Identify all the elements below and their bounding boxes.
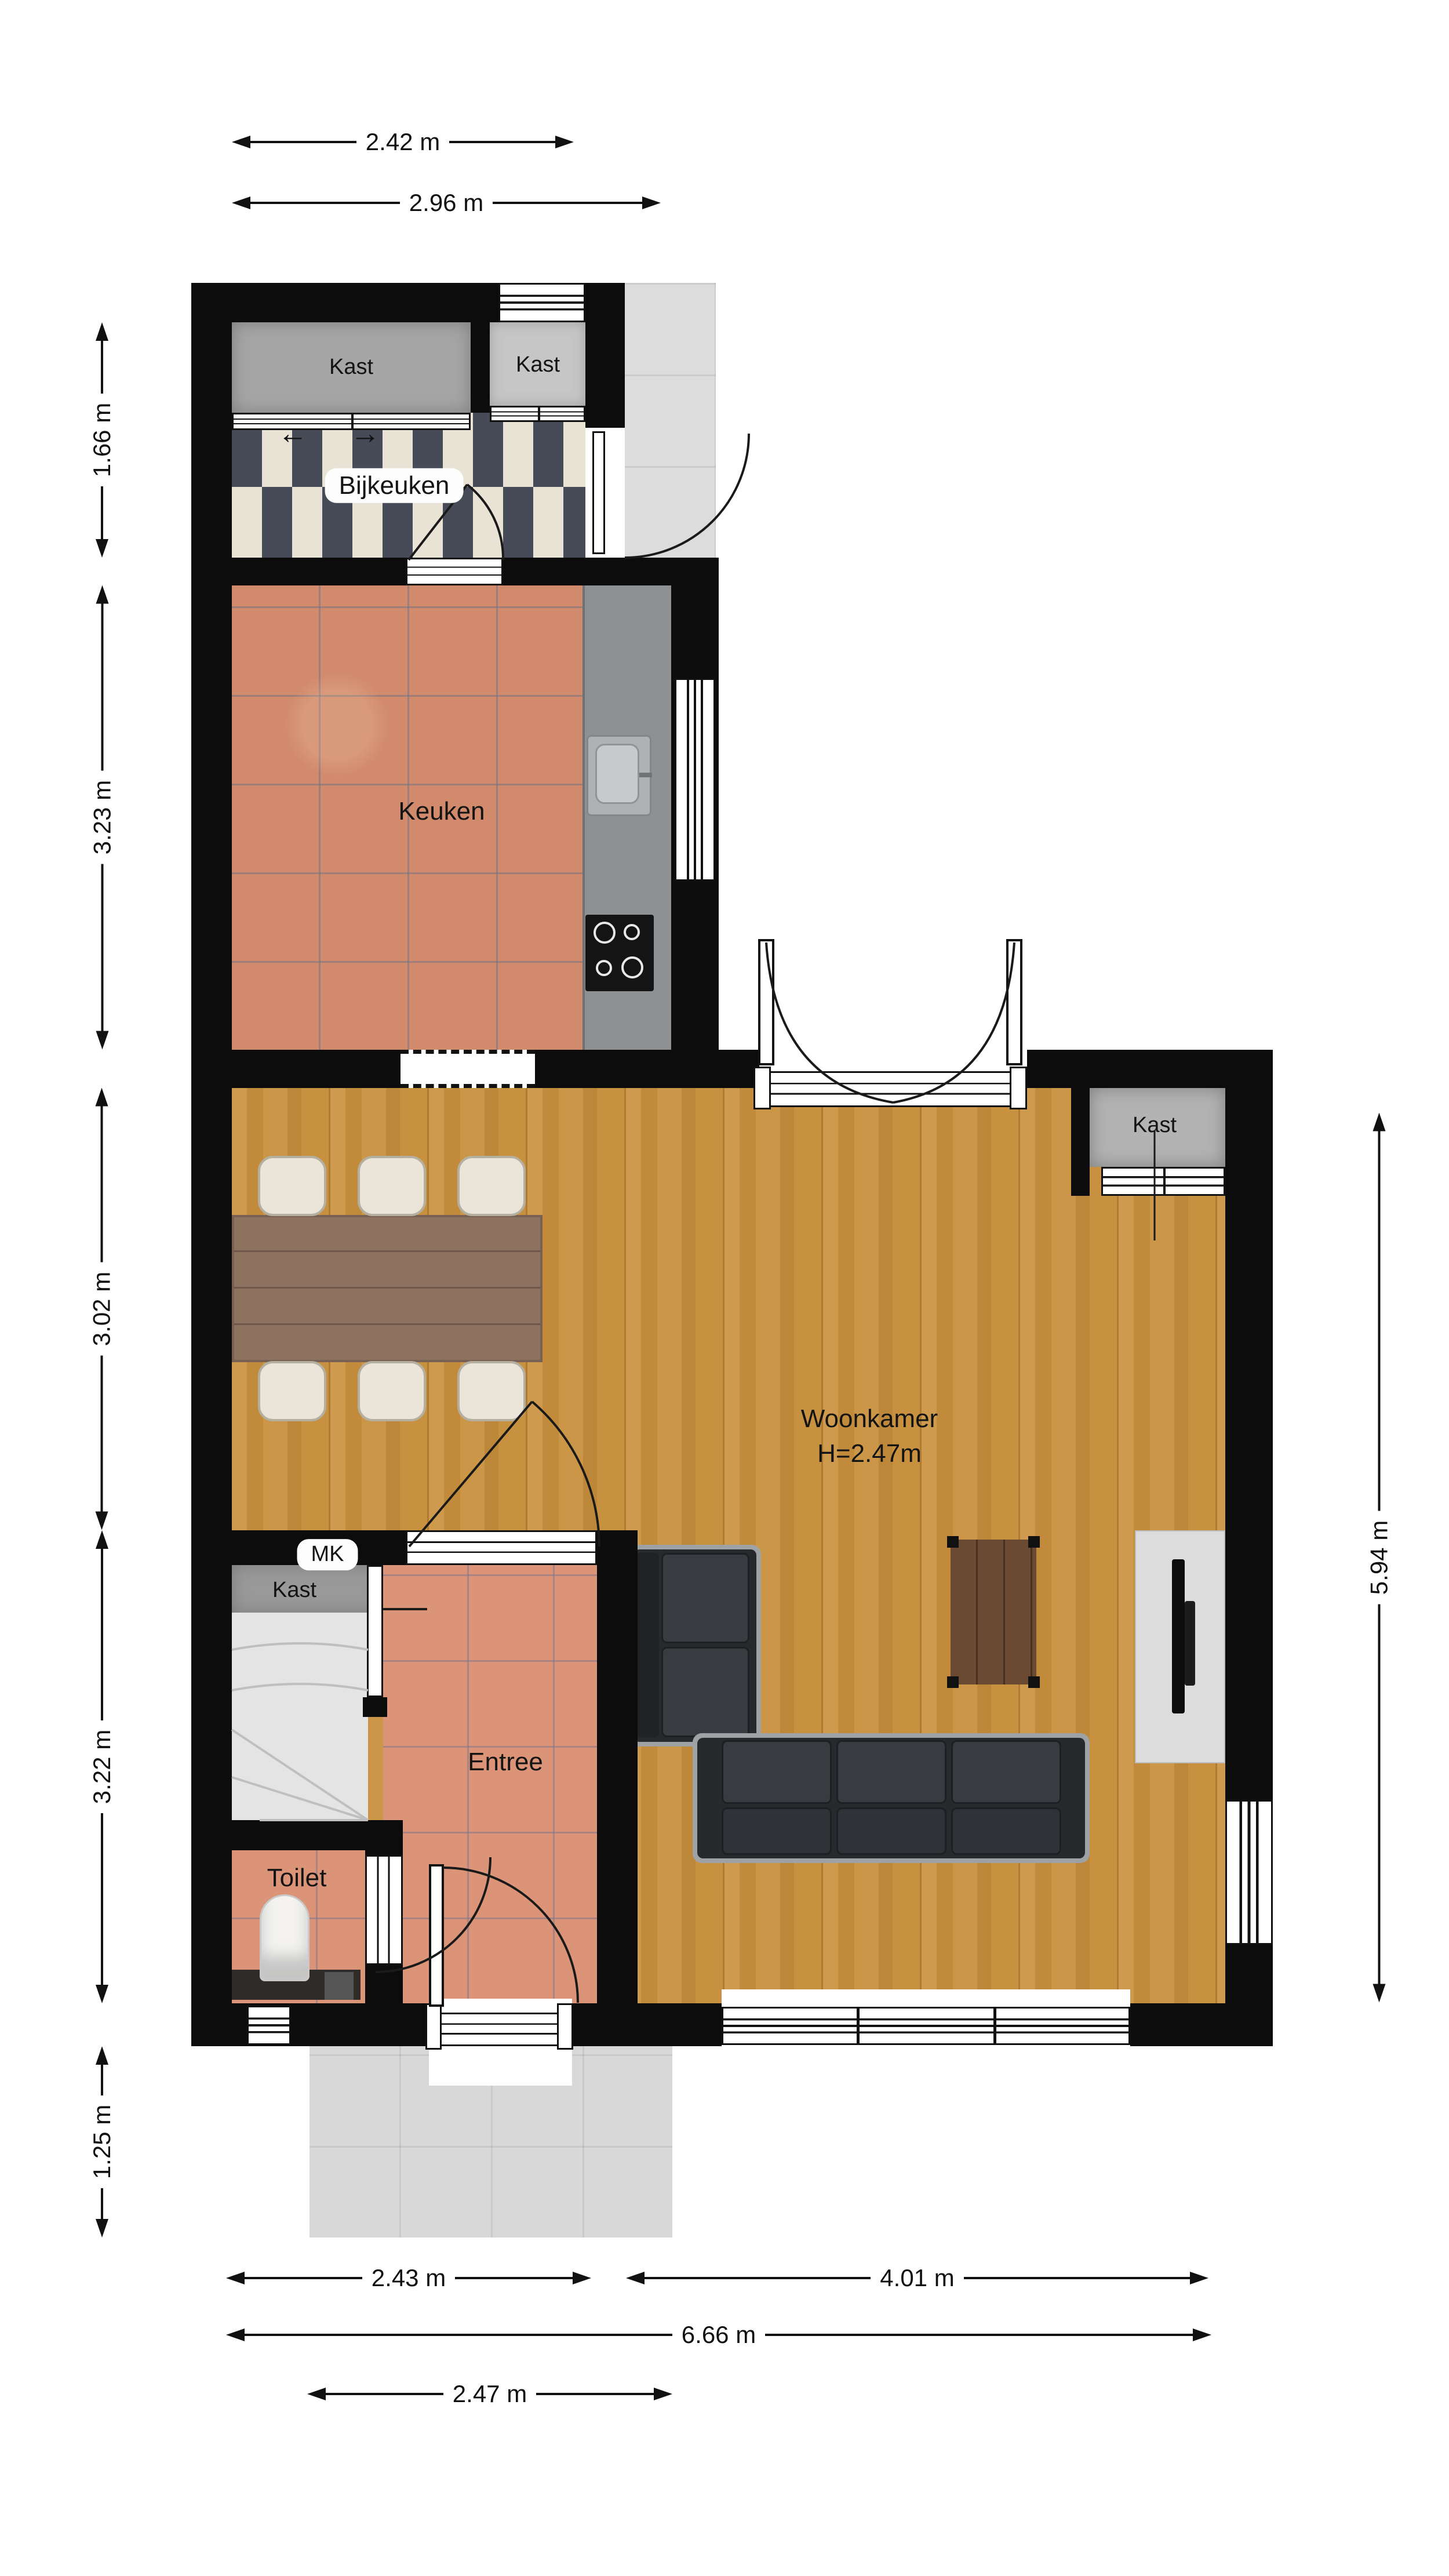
bijkeuken-label: Bijkeuken: [325, 468, 464, 503]
window: [675, 678, 715, 881]
entree-floor: [383, 1565, 597, 2003]
slide-right-icon: →: [350, 416, 380, 451]
front-door-sill: [429, 2013, 572, 2046]
dining-table: [232, 1215, 543, 1362]
dimension-left-4: 3.22 m: [90, 1530, 114, 2003]
patio-door-leaf: [592, 431, 605, 554]
wall-kast-divider: [471, 322, 490, 413]
entree-label: Entree: [468, 1748, 543, 1776]
coffee-table: [951, 1540, 1036, 1684]
wall-stairs-bottom: [191, 1820, 383, 1850]
window-divider: [857, 2007, 860, 2045]
burner-icon: [621, 956, 643, 978]
keuken-woonkamer-passage: [401, 1050, 535, 1088]
stairs-partition: [367, 1565, 383, 1697]
dining-chair: [358, 1361, 426, 1421]
sofa-two-seat: [629, 1545, 761, 1747]
woonkamer-height-label: H=2.47m: [817, 1440, 922, 1468]
kast3-sliding-door: [1101, 1167, 1225, 1196]
keuken-label: Keuken: [398, 798, 485, 825]
burner-icon: [594, 922, 616, 944]
dimension-left-1: 1.66 m: [90, 322, 114, 558]
slide-left-icon: ←: [278, 416, 308, 451]
dimension-bottom-1: 2.43 m: [226, 2266, 591, 2290]
dimension-top-2: 2.96 m: [232, 191, 661, 214]
toilet-wc: [260, 1894, 310, 1981]
cooktop: [585, 915, 654, 991]
dimension-left-2: 3.23 m: [91, 585, 114, 1050]
burner-icon: [596, 960, 612, 976]
kast2-sliding-door: [490, 406, 585, 422]
front-door-post: [425, 2003, 442, 2050]
patio-paving: [625, 283, 716, 558]
window: [247, 2006, 291, 2045]
toilet-label: Toilet: [267, 1864, 327, 1892]
dining-chair: [258, 1156, 326, 1216]
dimension-bottom-4: 2.47 m: [307, 2382, 672, 2406]
wall-entree-right: [597, 1530, 638, 2003]
woonkamer-entree-door-opening: [406, 1530, 597, 1565]
french-door-sill: [759, 1071, 1027, 1107]
window: [1225, 1800, 1273, 1945]
toilet-cabinet: [325, 1972, 354, 2000]
wall-left: [191, 283, 232, 2046]
kast4-label: Kast: [272, 1578, 316, 1603]
sink-basin: [595, 744, 639, 804]
dining-chair: [358, 1156, 426, 1216]
tv: [1172, 1559, 1185, 1713]
door-leaf-icon: [759, 940, 773, 1064]
window: [498, 283, 585, 322]
staircase: [232, 1613, 368, 1820]
dimension-right-1: 5.94 m: [1368, 1113, 1391, 2003]
kast2-label: Kast: [516, 353, 560, 377]
dining-chair: [457, 1156, 526, 1216]
kast1-label: Kast: [329, 355, 373, 380]
woonkamer-label: Woonkamer: [801, 1405, 938, 1433]
dimension-bottom-3: 6.66 m: [226, 2323, 1211, 2346]
floor-plan: Kast Kast Bijkeuken ← → Keuken Woonkamer…: [0, 0, 1449, 2576]
sink-faucet-icon: [639, 773, 652, 777]
window-divider: [993, 2007, 996, 2045]
tv-stand: [1185, 1601, 1195, 1686]
dimension-bottom-2: 4.01 m: [626, 2266, 1208, 2290]
dimension-left-5: 1.25 m: [90, 2046, 114, 2237]
toilet-door-opening: [365, 1855, 403, 1965]
sofa-three-seat: [693, 1733, 1090, 1863]
french-door-post: [1010, 1067, 1027, 1109]
window: [722, 2007, 1130, 2045]
dimension-left-3: 3.02 m: [90, 1088, 114, 1530]
wall-kast3-stub: [1071, 1088, 1090, 1196]
mk-label: MK: [297, 1539, 358, 1570]
french-door-post: [753, 1067, 771, 1109]
patio-door-opening: [585, 428, 625, 558]
kitchen-sink: [587, 735, 651, 816]
dining-chair: [258, 1361, 326, 1421]
front-door-post: [557, 2003, 573, 2050]
door-leaf-icon: [1007, 940, 1021, 1064]
wall-woonkamer-top: [191, 1050, 1273, 1088]
dining-chair: [457, 1361, 526, 1421]
kast3-label: Kast: [1133, 1114, 1177, 1138]
stairs-partition-stub: [363, 1697, 387, 1717]
burner-icon: [624, 924, 640, 940]
bijkeuken-keuken-door-opening: [406, 558, 503, 585]
dimension-top-1: 2.42 m: [232, 130, 574, 154]
